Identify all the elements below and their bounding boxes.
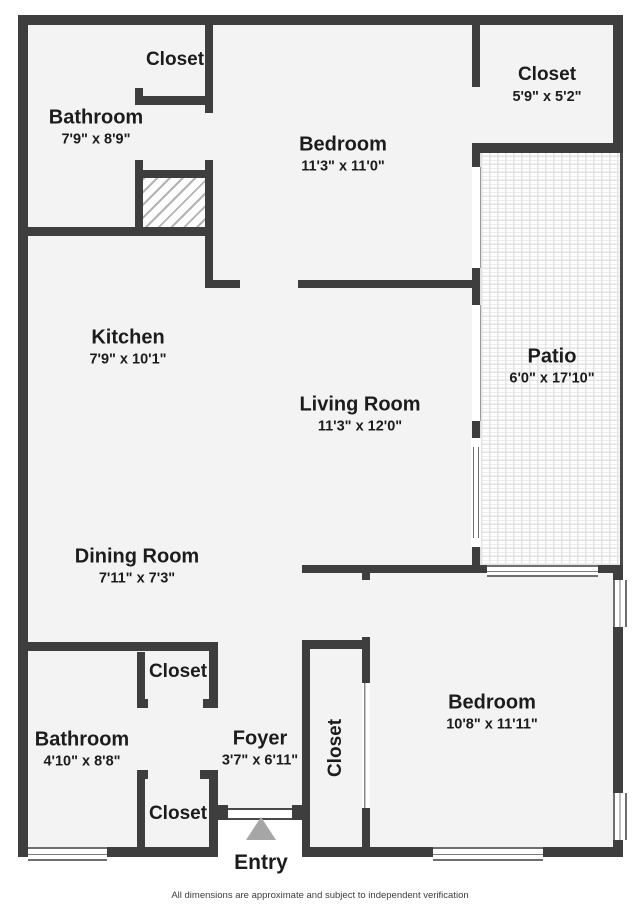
wall-v2-seg xyxy=(472,15,480,87)
wall-v3-seg xyxy=(362,808,370,857)
wall-right-seg xyxy=(613,840,623,857)
room-label-patio: Patio 6'0" x 17'10" xyxy=(509,344,594,389)
bedroom2-east-window-top xyxy=(613,580,627,627)
room-name: Kitchen xyxy=(89,325,166,351)
wall-closet3-bottom-seg xyxy=(203,699,218,708)
wall-v1-seg xyxy=(205,15,213,113)
living-patio-opening xyxy=(472,305,481,421)
room-label-living-room: Living Room 11'3" x 12'0" xyxy=(299,392,420,437)
wall-patio-bottom-seg xyxy=(598,565,623,573)
room-label-bathroom-bottom: Bathroom 4'10" x 8'8" xyxy=(35,727,129,772)
room-dims: 5'9" x 5'2" xyxy=(512,88,581,107)
wall-v2-seg xyxy=(472,421,480,438)
wall-shaft-top xyxy=(135,170,213,178)
room-dims: 10'8" x 11'11" xyxy=(446,716,538,735)
room-name: Living Room xyxy=(299,392,420,418)
entry-jamb-right xyxy=(292,805,302,820)
wall-closet2-bottom xyxy=(472,143,623,153)
wall-bedroom1-bottom-seg xyxy=(205,280,240,288)
bathroom2-window xyxy=(28,847,107,861)
room-label-closet-top-right: Closet 5'9" x 5'2" xyxy=(512,63,581,107)
room-label-bedroom-top: Bedroom 11'3" x 11'0" xyxy=(299,132,387,177)
wall-closet3-bottom-seg xyxy=(137,699,148,708)
room-name: Bedroom xyxy=(446,690,538,716)
wall-bottom-seg xyxy=(18,847,28,857)
room-dims: 11'3" x 11'0" xyxy=(299,158,387,177)
room-dims: 6'0" x 17'10" xyxy=(509,370,594,389)
wall-dining-bottom xyxy=(18,642,218,651)
wall-closet1-left-stub xyxy=(135,88,143,105)
bedroom2-south-window xyxy=(433,847,543,861)
room-label-closet-vertical: Closet xyxy=(325,719,347,777)
wall-closet1-bottom xyxy=(135,96,213,105)
room-label-foyer: Foyer 3'7" x 6'11" xyxy=(222,726,298,771)
room-label-closet-bottom-left: Closet xyxy=(149,803,207,825)
wall-bottom-seg xyxy=(107,847,218,857)
bedroom2-patio-window xyxy=(487,565,598,577)
patio-edge-line xyxy=(620,153,623,565)
room-name: Dining Room xyxy=(75,544,199,570)
wall-v2-seg xyxy=(472,268,480,305)
room-label-closet-mid-left: Closet xyxy=(149,661,207,683)
room-dims: 7'11" x 7'3" xyxy=(75,570,199,589)
room-dims: 4'10" x 8'8" xyxy=(35,753,129,772)
entry-arrow-icon xyxy=(246,817,276,840)
room-label-bathroom-top: Bathroom 7'9" x 8'9" xyxy=(49,105,143,150)
wall-v1-seg xyxy=(205,160,213,288)
closet-sliding-doors xyxy=(362,683,370,808)
entry-label: Entry xyxy=(234,851,288,875)
wall-left xyxy=(18,15,28,857)
bedroom2-east-window-bottom xyxy=(613,793,627,840)
room-dims: 7'9" x 8'9" xyxy=(49,131,143,150)
room-label-closet-top-left: Closet xyxy=(146,49,204,71)
room-dims: 3'7" x 6'11" xyxy=(222,752,298,771)
patio-sliding-door xyxy=(471,438,481,547)
hatched-shaft xyxy=(143,178,205,227)
wall-closet4-top-seg xyxy=(137,770,148,779)
room-name: Foyer xyxy=(222,726,298,752)
room-label-kitchen: Kitchen 7'9" x 10'1" xyxy=(89,325,166,370)
disclaimer-text: All dimensions are approximate and subje… xyxy=(0,890,640,901)
wall-bottom-seg xyxy=(543,847,623,857)
wall-bedroom1-bottom-seg xyxy=(298,280,480,288)
room-name: Bedroom xyxy=(299,132,387,158)
room-label-dining-room: Dining Room 7'11" x 7'3" xyxy=(75,544,199,589)
room-name: Closet xyxy=(512,63,581,88)
room-name: Patio xyxy=(509,344,594,370)
wall-bathroom-top-bottom xyxy=(18,227,213,236)
wall-closet4-right xyxy=(209,770,218,847)
wall-closet4-left xyxy=(137,770,145,847)
wall-top xyxy=(18,15,623,25)
wall-patio-bottom-seg xyxy=(302,565,487,573)
wall-v3-seg xyxy=(362,565,370,580)
room-dims: 7'9" x 10'1" xyxy=(89,351,166,370)
wall-closetstrip-top xyxy=(302,640,370,649)
room-name: Bathroom xyxy=(35,727,129,753)
wall-shaft-left xyxy=(135,160,143,236)
wall-closetstrip-left xyxy=(302,640,310,857)
wall-right-seg xyxy=(613,15,623,153)
room-label-bedroom-bottom: Bedroom 10'8" x 11'11" xyxy=(446,690,538,735)
entry-jamb-left xyxy=(218,805,228,820)
room-name: Bathroom xyxy=(49,105,143,131)
bedroom-patio-opening xyxy=(472,167,481,268)
floor-plan: Bathroom 7'9" x 8'9" Closet Bedroom 11'3… xyxy=(0,0,640,907)
wall-right-seg xyxy=(613,627,623,793)
room-dims: 11'3" x 12'0" xyxy=(299,418,420,437)
